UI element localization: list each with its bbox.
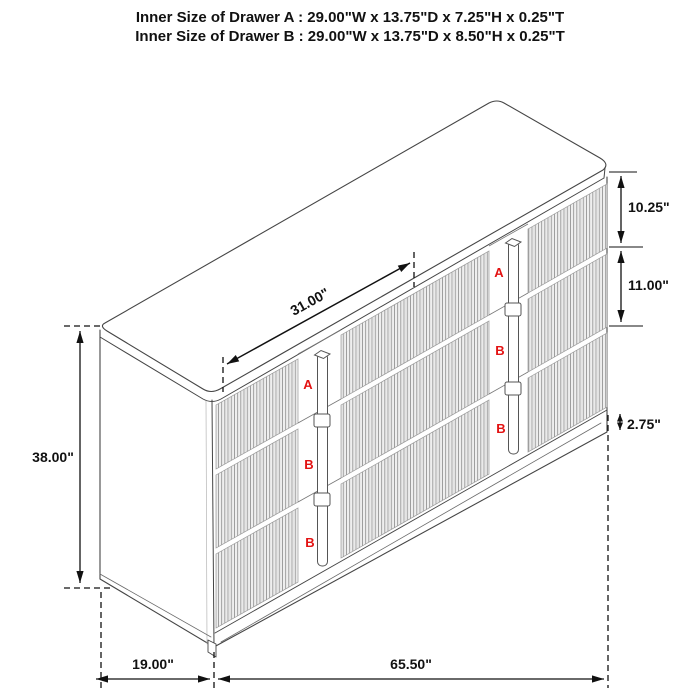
right-handle-mount-1 xyxy=(505,303,521,316)
width-dim-label: 65.50" xyxy=(390,656,432,672)
depth-dim-label: 19.00" xyxy=(132,656,174,672)
left-handle-bar xyxy=(318,353,328,566)
dim-drawer-a-height: 10.25" xyxy=(609,172,670,247)
drawer-a-dim-label: 10.25" xyxy=(628,199,670,215)
right-handle-bar xyxy=(509,241,519,454)
right-handle-mount-2 xyxy=(505,382,521,395)
product-dimension-diagram: Inner Size of Drawer A : 29.00"W x 13.75… xyxy=(0,0,700,700)
left-handle-mount-2 xyxy=(314,493,330,506)
left-drawer-a-label: A xyxy=(303,377,313,392)
left-drawer-b1-label: B xyxy=(304,457,313,472)
height-dim-label: 38.00" xyxy=(32,449,74,465)
dim-drawer-b-height: 11.00" xyxy=(609,251,669,326)
dim-base-height: 2.75" xyxy=(620,414,661,432)
right-drawer-a-label: A xyxy=(494,265,504,280)
left-handle-mount-1 xyxy=(314,414,330,427)
sideboard-isometric-drawing: A B B A B B 38.00" 19.00" xyxy=(0,0,700,700)
base-dim-label: 2.75" xyxy=(627,416,661,432)
left-drawer-b2-label: B xyxy=(305,535,314,550)
right-drawer-b1-label: B xyxy=(495,343,504,358)
drawer-b-dim-label: 11.00" xyxy=(628,277,669,293)
right-drawer-b2-label: B xyxy=(496,421,505,436)
